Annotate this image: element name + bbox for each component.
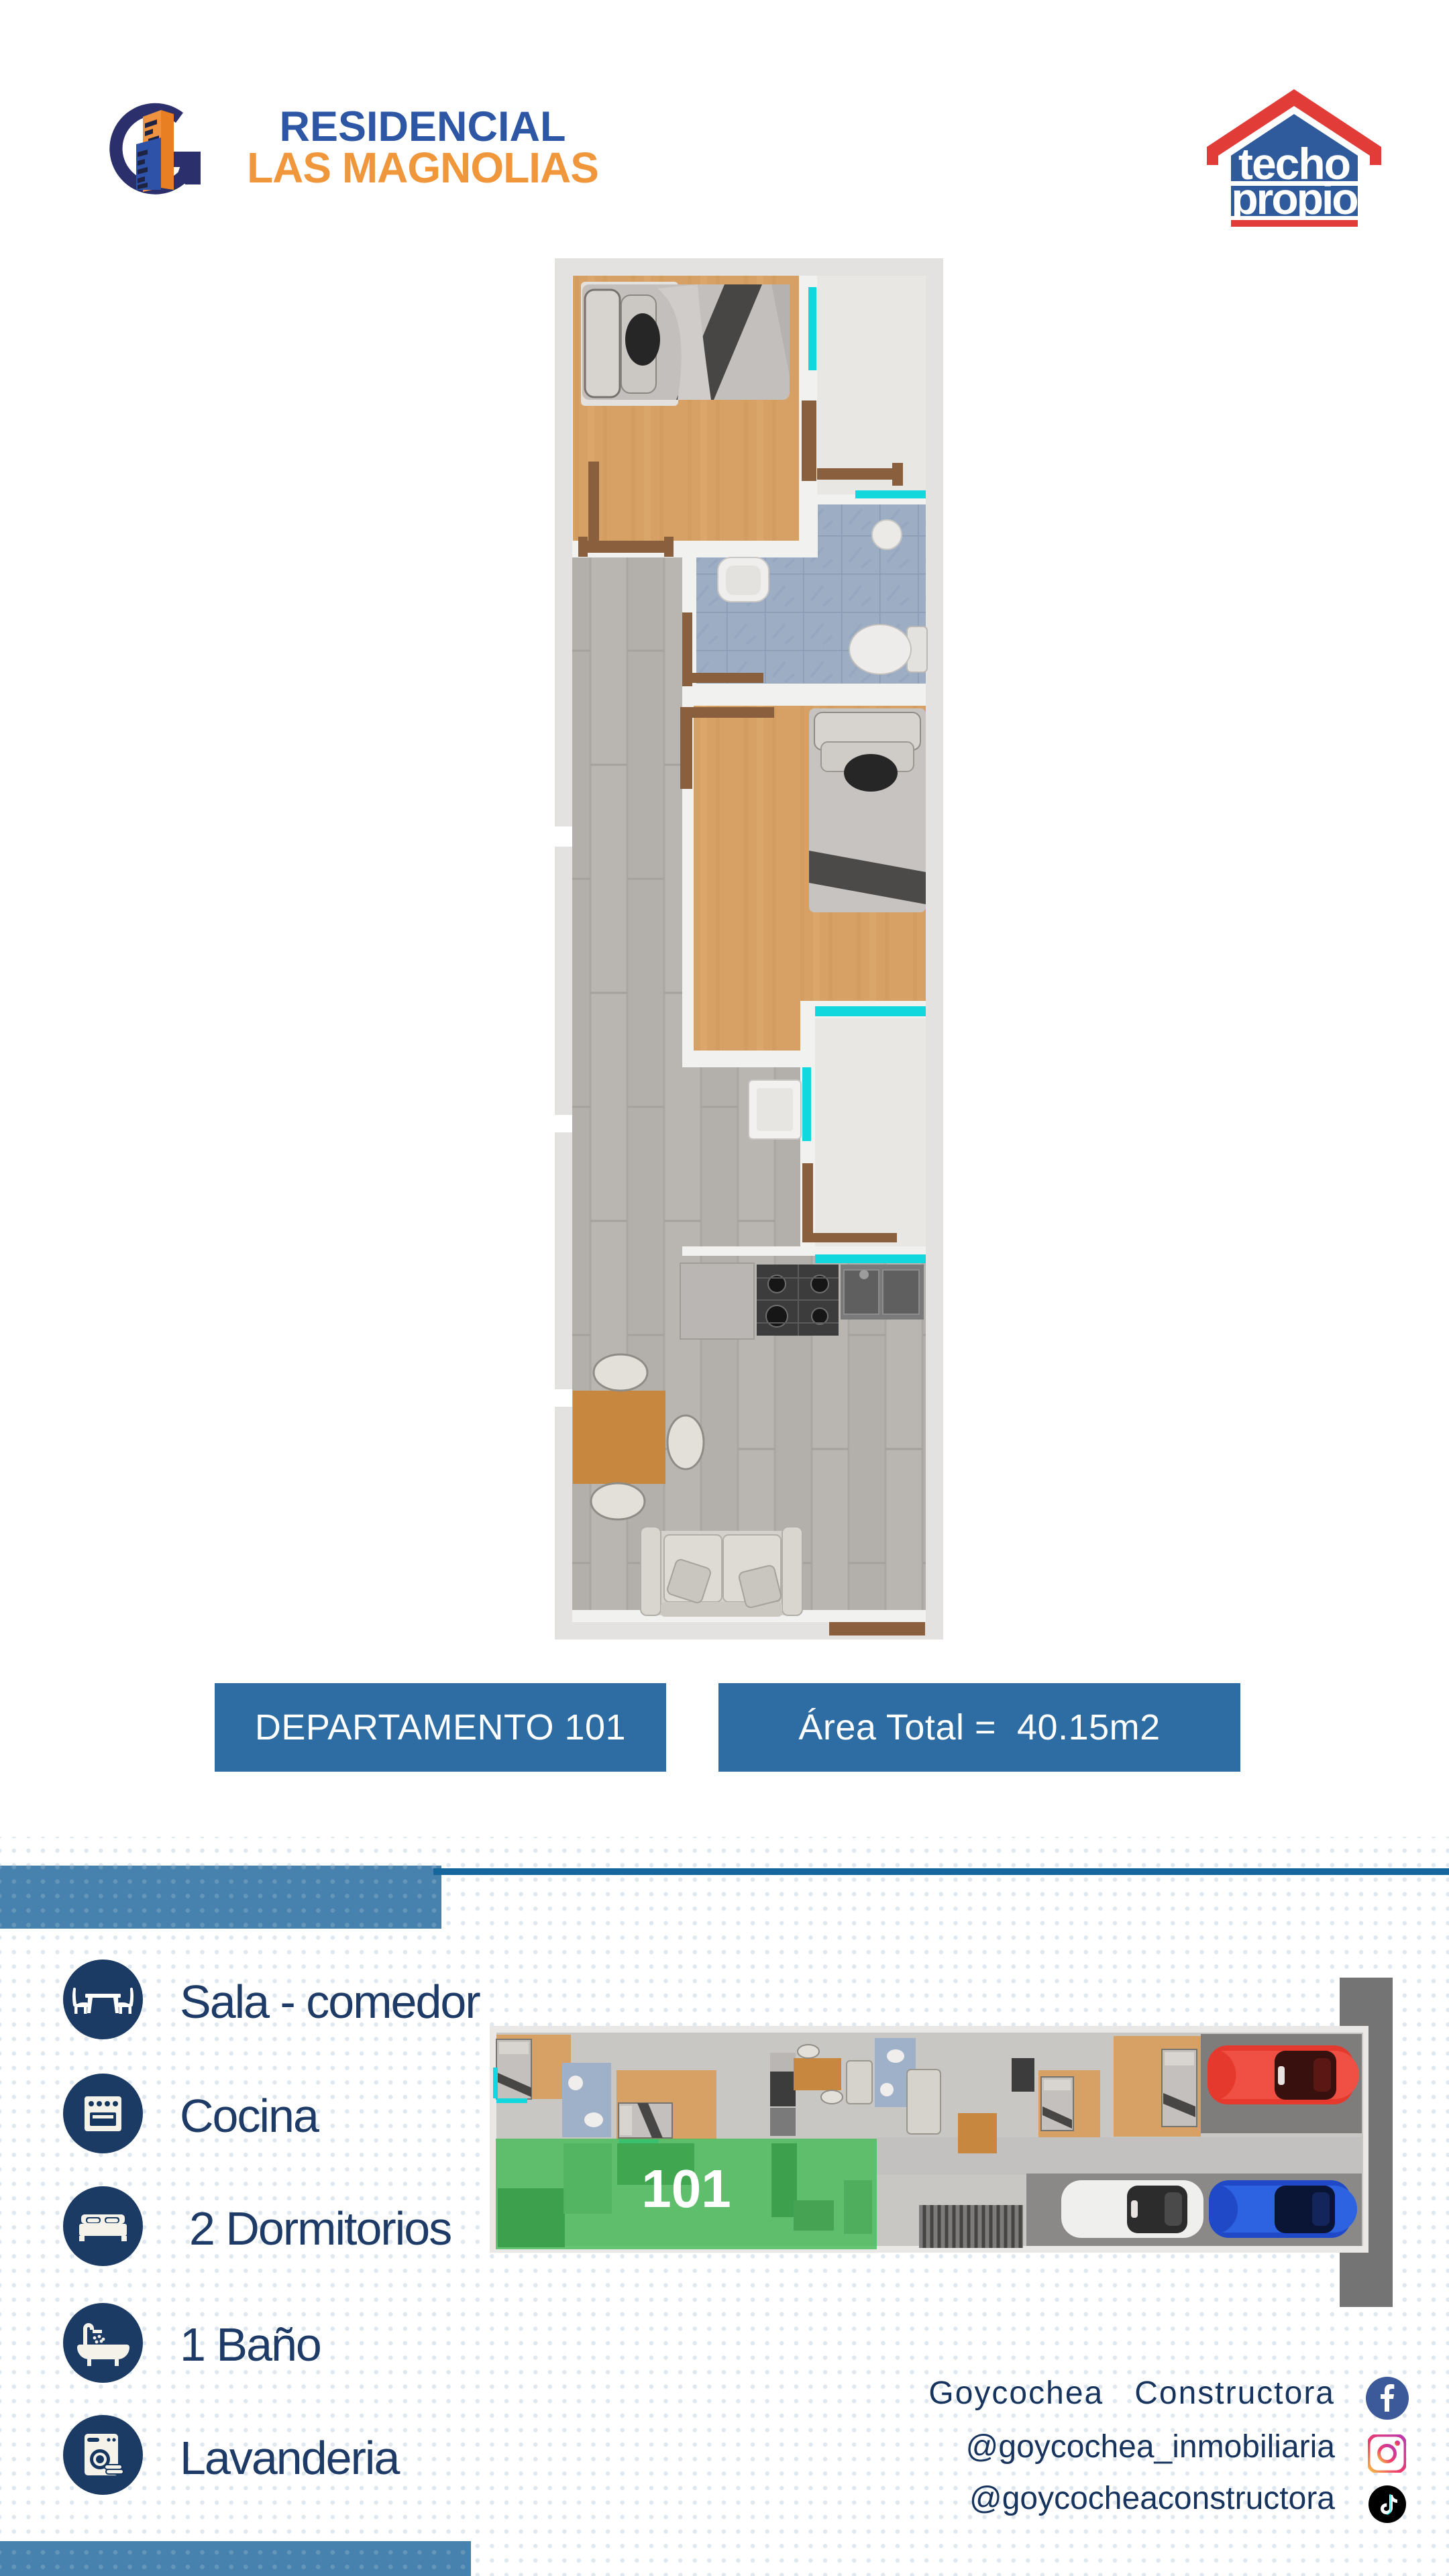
svg-text:101: 101 <box>641 2159 731 2218</box>
svg-text:propio: propio <box>1231 174 1357 223</box>
